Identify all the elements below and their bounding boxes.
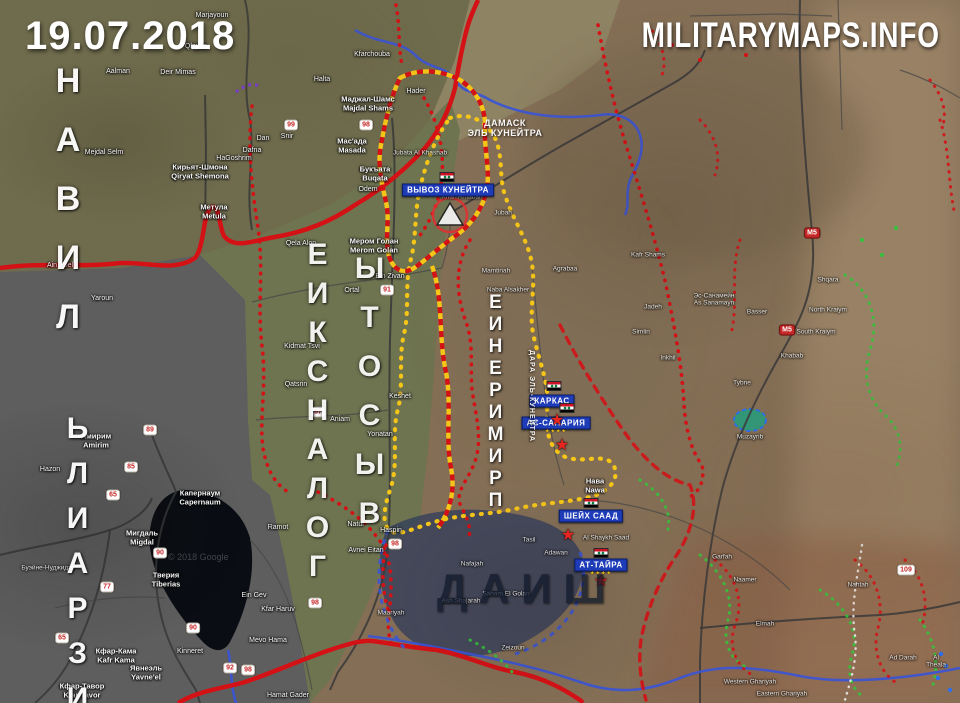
- town-label: Tybne: [733, 379, 751, 386]
- road-badge: 90: [153, 548, 167, 559]
- town-label: Deir Mimas: [160, 69, 195, 77]
- road-badge: 98: [308, 598, 322, 609]
- syria-flag-icon: [584, 498, 599, 508]
- town-label: HaGoshrim: [216, 155, 251, 163]
- town-label: North Kraiym: [809, 306, 847, 313]
- region-label: ЕИНЕРИМИРП: [484, 292, 506, 512]
- town-label: Мас'ада Masada: [337, 137, 367, 154]
- town-label: Yaroun: [91, 295, 113, 303]
- town-label: Agrabaa: [553, 265, 578, 272]
- town-label: Naamer: [733, 576, 756, 583]
- region-label: ЫТОСЫВ: [352, 252, 386, 546]
- road-badge: 98: [388, 539, 402, 550]
- date-label: 19.07.2018: [25, 14, 235, 59]
- town-label: Dafna: [243, 147, 262, 155]
- road-badge: 98: [241, 665, 255, 676]
- road-badge: M5: [779, 325, 795, 336]
- town-label: South Kraiym: [796, 328, 835, 335]
- town-label: Мигдаль Migdal: [126, 529, 158, 546]
- town-label: Shqara: [818, 276, 839, 283]
- road-badge: 77: [100, 582, 114, 593]
- road-badge: 90: [186, 623, 200, 634]
- road-badge: 99: [284, 120, 298, 131]
- town-label: Mamtinah: [482, 267, 511, 274]
- road-badge: 92: [223, 663, 237, 674]
- mini-stars-icon: ★★★★: [545, 430, 567, 435]
- town-label: Zeizoun: [501, 644, 524, 651]
- town-label: Kfar Haruv: [261, 606, 294, 614]
- red-star-icon: ★: [555, 438, 569, 454]
- town-label: Kafr Shams: [631, 251, 665, 258]
- town-label: Garfah: [712, 553, 732, 560]
- region-label: ЕИКСНАЛОГ: [300, 238, 334, 589]
- town-label: Mejdal Selm: [85, 149, 124, 157]
- town-label: Elmah: [756, 620, 774, 627]
- town-label: Halta: [314, 76, 330, 84]
- town-label: Muzayrib: [737, 433, 763, 440]
- map-annotations: MarjayounQlayaaDeir MimasAalmanMejdal Se…: [0, 0, 960, 703]
- road-badge: 98: [359, 120, 373, 131]
- town-label: Ein Gev: [242, 592, 267, 600]
- road-badge: M5: [804, 228, 820, 239]
- town-label: Kinneret: [177, 648, 203, 656]
- road-badge: 65: [106, 490, 120, 501]
- town-label: Inkhil: [660, 354, 675, 361]
- region-label: ДАМАСК ЭЛЬ КУНЕЙТРА: [468, 118, 543, 138]
- town-label: Snir: [281, 133, 293, 141]
- town-label: Simlin: [632, 328, 650, 335]
- town-label: Ad Darah: [889, 654, 916, 661]
- town-label: Al Theala: [924, 655, 948, 670]
- town-label: Hader: [406, 88, 425, 96]
- town-label: Капернаум Capernaum: [179, 489, 220, 506]
- town-label: Kfarchouba: [354, 51, 390, 59]
- red-star-icon: ★: [550, 413, 564, 429]
- town-label: Tasil: [522, 536, 535, 543]
- town-label: Маджал-Шамс Majdal Shams: [341, 95, 394, 112]
- town-label: Jubah: [494, 209, 512, 216]
- town-label: Basser: [747, 308, 767, 315]
- town-label: Метула Metula: [200, 203, 227, 220]
- google-copyright: © 2018 Google: [168, 552, 229, 562]
- town-label: Keshet: [389, 393, 411, 401]
- watermark: MILITARYMAPS.INFO: [642, 16, 940, 56]
- town-label: Тверия Tiberias: [152, 571, 181, 588]
- map-canvas: MarjayounQlayaaDeir MimasAalmanMejdal Se…: [0, 0, 960, 703]
- town-label: Al Shaykh Saad: [583, 534, 629, 541]
- town-label: Нава Nawa: [585, 477, 605, 494]
- region-label: ДАРА ЭЛЬ-КУНЕЙТРА: [528, 350, 535, 442]
- town-label: Khabab: [781, 352, 803, 359]
- road-badge: 109: [897, 565, 915, 576]
- road-badge: 85: [124, 462, 138, 473]
- town-label: Aalman: [106, 68, 130, 76]
- town-label: Nahtah: [848, 581, 869, 588]
- region-label: НАВИЛ: [48, 62, 87, 357]
- town-label: Dan: [257, 135, 270, 143]
- town-label: Букъата Buqata: [360, 165, 391, 182]
- event-label-box: ВЫВОЗ КУНЕЙТРА: [402, 184, 494, 197]
- town-label: Явнеэль Yavne'el: [130, 664, 162, 681]
- town-label: Jubata Al Khashab: [393, 149, 447, 156]
- town-label: Mevo Hama: [249, 637, 287, 645]
- town-label: Кирьят-Шмона Qiryat Shemona: [171, 163, 229, 180]
- region-label: ДАИШ: [437, 565, 618, 613]
- red-star-icon: ★: [561, 528, 575, 544]
- town-label: Western Ghariyah: [724, 678, 776, 685]
- town-label: Hazon: [40, 466, 60, 474]
- town-label: Кфар-Кама Kafr Kama: [96, 647, 137, 664]
- town-label: Maariyah: [378, 609, 405, 616]
- town-label: Ramot: [268, 524, 289, 532]
- region-label: ЬЛИАРЗИ: [60, 412, 94, 703]
- town-label: Эс-Санамейн As Sanamayn: [694, 293, 735, 308]
- syria-flag-icon: [547, 381, 562, 391]
- town-label: Eastern Ghariyah: [757, 690, 808, 697]
- road-badge: 89: [143, 425, 157, 436]
- town-label: Hamat Gader: [267, 692, 309, 700]
- town-label: Jadeh: [644, 303, 662, 310]
- town-label: Odem: [358, 186, 377, 194]
- town-label: Adawan: [544, 549, 568, 556]
- syria-flag-icon: [594, 548, 609, 558]
- event-label-box: ШЕЙХ СААД: [559, 510, 623, 523]
- town-label: Avnei Eitan: [348, 547, 383, 555]
- syria-flag-icon: [440, 172, 455, 182]
